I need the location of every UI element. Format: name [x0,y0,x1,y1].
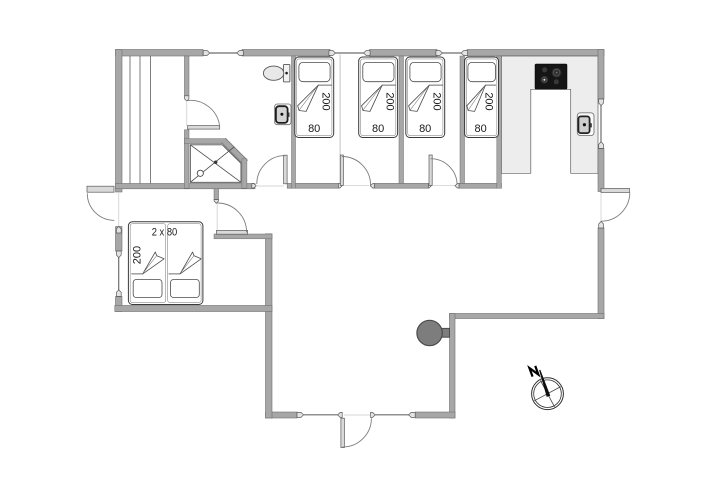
svg-text:80: 80 [474,123,486,135]
svg-text:2 x 80: 2 x 80 [152,226,178,238]
svg-text:200: 200 [482,92,494,110]
svg-text:200: 200 [319,92,331,110]
svg-text:80: 80 [308,123,320,135]
svg-text:200: 200 [132,246,144,264]
